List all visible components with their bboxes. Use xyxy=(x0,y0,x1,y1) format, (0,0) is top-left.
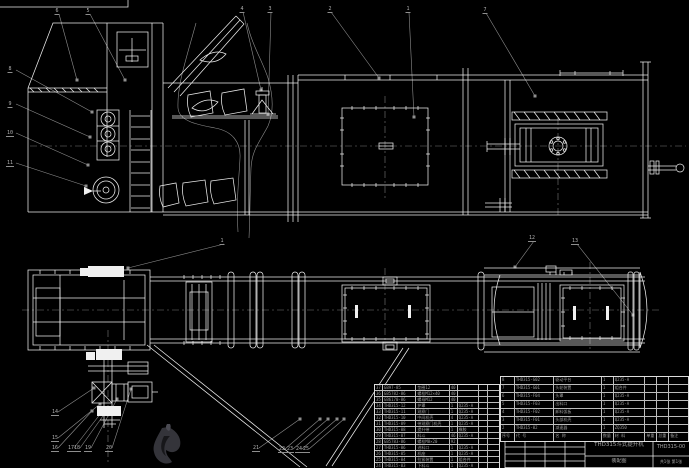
bom-cell: GB5783-86 xyxy=(383,439,416,444)
bom-cell xyxy=(488,427,499,432)
bom-cell xyxy=(488,457,499,462)
bom-cell xyxy=(645,393,657,400)
rotation-arrow xyxy=(84,187,93,195)
bom-cell: Q235-A xyxy=(458,463,480,468)
bom-cell: 4 xyxy=(450,415,458,420)
bom-cell: 1 xyxy=(602,377,614,384)
part-balloon: 23 xyxy=(286,446,294,453)
bom-cell: 29 xyxy=(375,433,383,438)
bom-cell: Q235-A xyxy=(614,409,646,416)
bom-cell: Q235-A xyxy=(458,445,480,450)
bom-cell: 1 xyxy=(602,409,614,416)
part-balloon: 18 xyxy=(73,445,81,452)
bom-cell: 1 xyxy=(602,385,614,392)
bom-cell: THD315-F02 xyxy=(515,409,555,416)
bom-cell: 驱动平台 xyxy=(554,377,601,384)
part-balloon: 11 xyxy=(6,160,14,167)
bom-cell: 6 xyxy=(501,393,515,400)
part-balloon: 7 xyxy=(482,7,487,14)
part-balloon: 22 xyxy=(278,446,286,453)
bom-cell: THD315-08 xyxy=(383,427,416,432)
bom-cell: 中间机壳 xyxy=(416,415,449,420)
bom-cell: 出料口 xyxy=(554,401,601,408)
bom-cell: 提升带 xyxy=(416,427,449,432)
bom-cell xyxy=(479,433,488,438)
bom-cell xyxy=(488,403,499,408)
bom-cell: 33 xyxy=(375,409,383,414)
bom-row: 3THD315-F01头部机壳1Q235-A xyxy=(501,417,688,425)
bom-cell: 25 xyxy=(375,457,383,462)
bom-cell: 8 xyxy=(501,377,515,384)
bom-cell xyxy=(479,421,488,426)
bom-cell: 30 xyxy=(375,427,383,432)
bom-row: 8THD315-G02驱动平台1Q235-A xyxy=(501,377,688,385)
bom-cell: 序号 xyxy=(501,433,515,441)
bom-cell: 5 xyxy=(501,401,515,408)
bom-row: 4THD315-F02卸料弧板1Q235-A xyxy=(501,409,688,417)
bom-cell: 组合件 xyxy=(614,385,646,392)
bom-cell xyxy=(488,415,499,420)
bom-cell xyxy=(479,385,488,390)
bom-cell: 进料口 xyxy=(416,445,449,450)
bom-cell: 单重 xyxy=(645,433,657,441)
bom-cell xyxy=(645,417,657,424)
bom-cell xyxy=(657,385,669,392)
bom-cell: 26 xyxy=(375,451,383,456)
bom-cell: 材 料 xyxy=(614,433,646,441)
bom-cell: 1 xyxy=(450,403,458,408)
bom-cell xyxy=(458,391,480,396)
bom-cell: 头轮装置 xyxy=(554,385,601,392)
bom-row: 24THD315-03下料斗1Q235-A xyxy=(375,463,499,468)
bom-cell xyxy=(657,409,669,416)
bom-cell: 拉紧装置 xyxy=(416,457,449,462)
bom-cell: 2 xyxy=(501,425,515,432)
part-balloon: 6 xyxy=(54,8,59,15)
bom-cell xyxy=(669,401,688,408)
bom-table-right: 8THD315-G02驱动平台1Q235-A7THD315-G01头轮装置1组合… xyxy=(500,376,689,442)
bom-cell: THD315-10 xyxy=(383,415,416,420)
bom-cell: Q235-A xyxy=(614,393,646,400)
part-balloon: 19 xyxy=(84,445,92,452)
bom-cell: THD315-09 xyxy=(383,421,416,426)
bom-cell: 1 xyxy=(450,409,458,414)
bom-cell: THD315-F01 xyxy=(515,417,555,424)
bom-cell xyxy=(479,439,488,444)
bom-cell xyxy=(479,457,488,462)
bom-cell: 螺栓M8×20 xyxy=(416,439,449,444)
bom-cell xyxy=(488,385,499,390)
bom-cell xyxy=(479,397,488,402)
bom-cell: 27 xyxy=(375,445,383,450)
bom-cell xyxy=(669,377,688,384)
bom-cell: 35 xyxy=(375,397,383,402)
sheet-frame-corner xyxy=(0,0,128,7)
bom-cell xyxy=(488,409,499,414)
bom-cell xyxy=(657,401,669,408)
bom-cell: 料斗 xyxy=(416,433,449,438)
bom-cell: 37 xyxy=(375,385,383,390)
bom-cell xyxy=(479,463,488,468)
part-balloon: 25 xyxy=(302,446,310,453)
part-balloon: 1 xyxy=(219,238,224,245)
bom-cell: THD315-06 xyxy=(383,445,416,450)
bom-cell xyxy=(458,385,480,390)
bom-cell xyxy=(488,463,499,468)
bom-cell: 28 xyxy=(375,439,383,444)
bom-cell: 减速器 xyxy=(554,425,601,432)
bom-cell: THD315-F04 xyxy=(515,393,555,400)
part-balloon: 1 xyxy=(405,6,410,13)
bom-row: 2THD315-02减速器1ZQ350 xyxy=(501,425,688,433)
bom-cell xyxy=(488,433,499,438)
bom-cell: Q235-A xyxy=(614,377,646,384)
bom-cell xyxy=(645,401,657,408)
bom-cell xyxy=(479,445,488,450)
bom-row: 5THD315-F03出料口1Q235-A xyxy=(501,401,688,409)
bom-cell: Q235-A xyxy=(458,451,480,456)
part-balloon: 21 xyxy=(252,445,260,452)
bom-cell: 头部机壳 xyxy=(554,417,601,424)
bom-cell: THD315-12 xyxy=(383,403,416,408)
part-balloon: 3 xyxy=(267,6,272,13)
bom-row: 序号代 号名 称数量材 料单重总重备注 xyxy=(501,433,688,441)
bom-cell: Q235-A xyxy=(458,433,480,438)
bom-cell: 46 xyxy=(450,433,458,438)
bom-cell xyxy=(669,409,688,416)
bom-cell: 1 xyxy=(450,463,458,468)
bom-cell: 40 xyxy=(450,397,458,402)
bom-cell: ZQ350 xyxy=(614,425,646,432)
bom-cell xyxy=(488,451,499,456)
part-balloon: 13 xyxy=(571,238,579,245)
part-balloon: 10 xyxy=(6,130,14,137)
bom-cell: THD315-F03 xyxy=(515,401,555,408)
bom-cell: Q235-A xyxy=(458,421,480,426)
coupling xyxy=(96,349,122,360)
bom-cell: 代 号 xyxy=(515,433,555,441)
bom-cell: 卸料弧板 xyxy=(554,409,601,416)
bom-cell: 总重 xyxy=(657,433,669,441)
part-balloon: 14 xyxy=(51,409,59,416)
part-balloon: 12 xyxy=(528,235,536,242)
bom-cell: 1 xyxy=(450,445,458,450)
bom-cell xyxy=(479,409,488,414)
bom-table-left: 37GB97-85垫圈124036GB5782-86螺栓M12×404035GB… xyxy=(374,384,500,468)
part-balloon: 16 xyxy=(51,445,59,452)
bom-cell: 36 xyxy=(375,391,383,396)
bom-cell: Q235-A xyxy=(614,417,646,424)
bom-cell: Q235-A xyxy=(458,415,480,420)
bom-cell: 24 xyxy=(375,463,383,468)
bom-cell xyxy=(669,385,688,392)
bom-cell: 名 称 xyxy=(554,433,601,441)
bom-cell xyxy=(488,397,499,402)
bom-cell: 34 xyxy=(375,403,383,408)
title-sheet-info: 共1张 第1张 xyxy=(654,459,688,464)
bom-cell: THD315-07 xyxy=(383,433,416,438)
bom-cell: GB97-85 xyxy=(383,385,416,390)
watermark-logo xyxy=(154,424,181,464)
bom-cell xyxy=(657,393,669,400)
part-balloon: 8 xyxy=(7,66,12,73)
title-drawing-number: THD315-00 xyxy=(654,444,688,450)
bom-cell: THD315-05 xyxy=(383,451,416,456)
bom-cell: Q235-A xyxy=(614,401,646,408)
takeup-screw xyxy=(648,166,676,170)
part-balloon: 4 xyxy=(239,6,244,13)
bom-cell: 40 xyxy=(450,385,458,390)
bom-cell: 观察门 xyxy=(416,409,449,414)
side-elevation-view xyxy=(28,16,684,222)
bom-cell: THD315-G02 xyxy=(515,377,555,384)
bom-cell: THD315-G01 xyxy=(515,385,555,392)
bucket xyxy=(159,178,236,207)
part-balloon: 5 xyxy=(85,8,90,15)
bom-cell xyxy=(657,377,669,384)
title-drawing-type: 装配图 xyxy=(586,458,652,464)
bom-cell xyxy=(669,417,688,424)
bom-cell: 螺母M12 xyxy=(416,397,449,402)
bom-cell: 32 xyxy=(375,415,383,420)
bom-cell xyxy=(488,391,499,396)
bom-cell: 下料斗 xyxy=(416,463,449,468)
bom-cell xyxy=(479,451,488,456)
bom-cell: 护罩 xyxy=(416,403,449,408)
bom-cell: 机座 xyxy=(416,451,449,456)
bom-cell: 数量 xyxy=(602,433,614,441)
bom-cell: 橡胶 xyxy=(458,427,480,432)
bom-cell: 带观察门机壳 xyxy=(416,421,449,426)
part-balloon: 15 xyxy=(51,435,59,442)
bom-cell xyxy=(488,421,499,426)
bom-cell xyxy=(479,391,488,396)
bom-cell: 3 xyxy=(501,417,515,424)
bom-cell: 1 xyxy=(602,393,614,400)
bom-cell xyxy=(479,403,488,408)
cad-drawing-canvas: 6543217891011112131415161718192021222324… xyxy=(0,0,689,468)
bom-cell: 1 xyxy=(450,421,458,426)
bom-cell xyxy=(645,377,657,384)
title-product-name: THD315斗式提升机 xyxy=(586,442,652,449)
bom-cell: 40 xyxy=(450,391,458,396)
bom-cell: 1 xyxy=(602,417,614,424)
bom-cell xyxy=(669,425,688,432)
head-panel-plan xyxy=(560,285,624,341)
bom-cell: THD315-11 xyxy=(383,409,416,414)
bom-cell: GB6170-86 xyxy=(383,397,416,402)
bom-cell: THD315-03 xyxy=(383,463,416,468)
bom-cell xyxy=(458,439,480,444)
bom-cell xyxy=(645,409,657,416)
part-balloon: 2 xyxy=(327,6,332,13)
bom-cell xyxy=(488,439,499,444)
inlet-fitting xyxy=(88,266,124,277)
bom-cell xyxy=(488,445,499,450)
bom-cell: 头罩 xyxy=(554,393,601,400)
inspection-window xyxy=(117,32,148,67)
bom-cell: 垫圈12 xyxy=(416,385,449,390)
bom-cell xyxy=(479,427,488,432)
bom-cell: THD315-02 xyxy=(515,425,555,432)
bom-cell: Q235-A xyxy=(458,409,480,414)
bom-cell: 92 xyxy=(450,439,458,444)
bom-cell: 备注 xyxy=(669,433,688,441)
bom-cell xyxy=(479,415,488,420)
bom-cell xyxy=(458,397,480,402)
bom-cell: 1 xyxy=(450,451,458,456)
bom-cell: THD315-04 xyxy=(383,457,416,462)
part-balloon: 9 xyxy=(7,101,12,108)
bom-cell: 1 xyxy=(602,401,614,408)
bom-row: 7THD315-G01头轮装置1组合件 xyxy=(501,385,688,393)
bom-cell: 螺栓M12×40 xyxy=(416,391,449,396)
bom-cell xyxy=(657,425,669,432)
bom-cell: GB5782-86 xyxy=(383,391,416,396)
bom-cell xyxy=(645,385,657,392)
bom-cell: 组合件 xyxy=(458,457,480,462)
bom-cell: 1 xyxy=(450,427,458,432)
bom-cell: 4 xyxy=(501,409,515,416)
bom-cell: Q235-A xyxy=(458,403,480,408)
part-balloon: 20 xyxy=(105,445,113,452)
bom-cell xyxy=(645,425,657,432)
bom-cell xyxy=(657,417,669,424)
bom-cell: 1 xyxy=(602,425,614,432)
bom-cell: 31 xyxy=(375,421,383,426)
bom-cell: 1 xyxy=(450,457,458,462)
bom-cell xyxy=(669,393,688,400)
motor xyxy=(97,406,121,416)
bom-cell: 7 xyxy=(501,385,515,392)
bom-row: 6THD315-F04头罩1Q235-A xyxy=(501,393,688,401)
